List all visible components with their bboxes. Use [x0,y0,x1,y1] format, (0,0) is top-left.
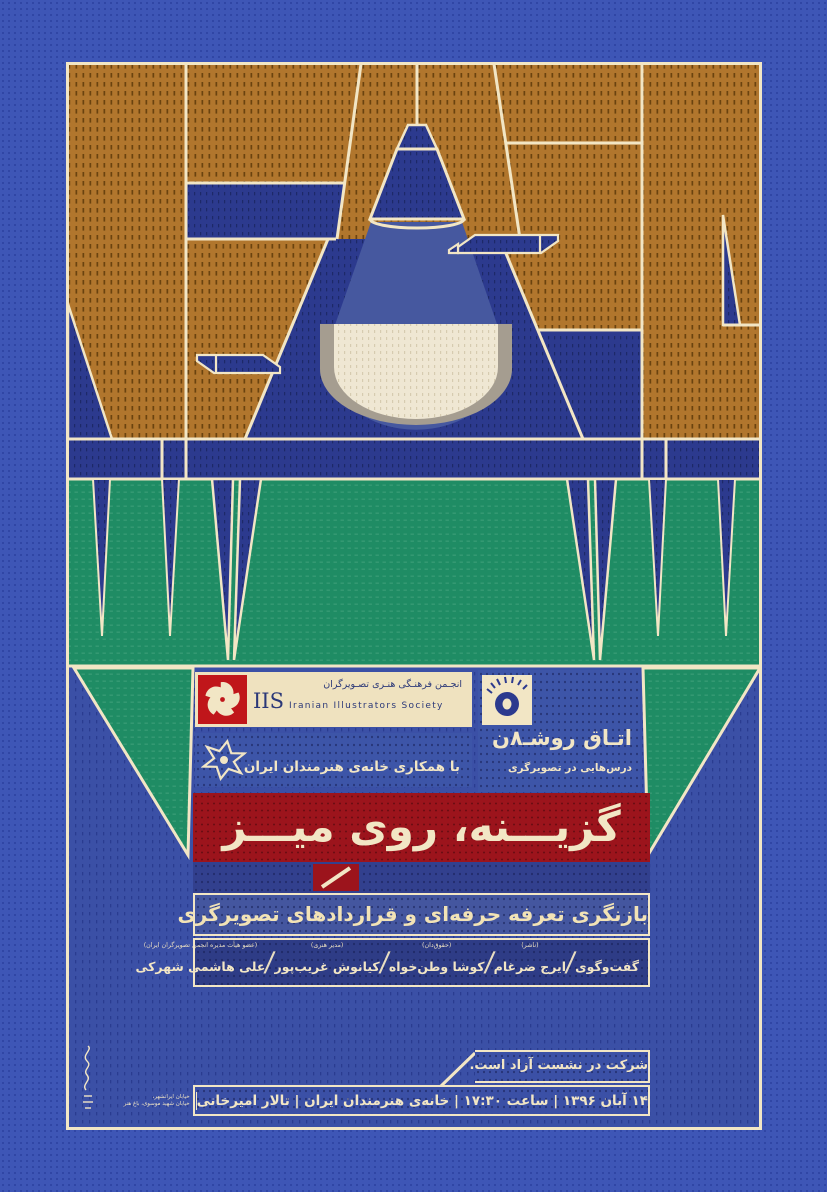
artists-house-logo-icon [201,737,247,787]
iis-pinwheel-icon [198,675,247,724]
iis-name-fa: انجـمن فرهنـگی هنـری تصـویرگران [253,679,462,690]
address-line-1: خیابان ایرانشهر، [124,1094,190,1101]
subtitle-bar: بازنگری تعرفه حرفه‌ای و قراردادهای تصویر… [193,893,650,936]
venue-address: خیابان ایرانشهر، خیابان شهید موسوی، باغ … [120,1092,197,1110]
date-venue-bar: ۱۴ آبان ۱۳۹۶ | ساعت ۱۷:۳۰ | خانه‌ی هنرمن… [193,1085,650,1116]
participant: (مدیر هنری) کیانوش غریب‌پور [275,942,380,983]
kasra-strip [193,862,650,893]
iis-name-en-text: Iranian Illustrators Society [289,701,444,711]
table-band [68,439,760,479]
aperture-eye-icon [482,675,532,725]
address-line-2: خیابان شهید موسوی، باغ هنر [124,1101,190,1108]
participant: (عضو هیأت مدیره انجمن تصویرگران ایران) ع… [136,942,266,983]
date-venue-text: ۱۴ آبان ۱۳۹۶ | ساعت ۱۷:۳۰ | خانه‌ی هنرمن… [197,1093,648,1109]
main-title: گزیـــنه، روی میـــز [193,793,650,860]
iis-name-en: IIS Iranian Illustrators Society [253,690,472,712]
series-subtitle: درس‌هایی در تصویرگری [482,762,632,774]
participant-role: (عضو هیأت مدیره انجمن تصویرگران ایران) [144,942,258,954]
participants-bar: گفت‌وگوی / (ناشر) ایرج ضرغام / (حقوق‌دان… [193,938,650,987]
main-title-banner: گزیـــنه، روی میـــز [193,793,650,862]
participant-name: علی هاشمی شهرکی [136,954,266,980]
participant-role: (مدیر هنری) [311,942,343,954]
pen-left [197,355,280,373]
series-box: اتـاق روشـ۸ن درس‌هایی در تصویرگری [478,670,640,792]
free-entry-text: شرکت در نشست آزاد است. [475,1052,648,1080]
kasra-mark [313,864,359,891]
participant-name: کوشا وطن‌خواه [389,954,485,980]
poster: انجـمن فرهنـگی هنـری تصـویرگران IIS Iran… [66,62,762,1130]
collaboration-box: با همکاری خانه‌ی هنرمندان ایران [195,733,472,787]
iis-logo-box: انجـمن فرهنـگی هنـری تصـویرگران IIS Iran… [195,672,472,727]
pen-right [458,235,558,253]
poster-page: انجـمن فرهنـگی هنـری تصـویرگران IIS Iran… [0,0,827,1192]
free-entry-box: شرکت در نشست آزاد است. [475,1050,650,1083]
panel-intro-text: گفت‌وگوی [575,954,639,980]
iis-abbr: IIS [253,690,284,712]
participant-name: کیانوش غریب‌پور [275,954,380,980]
participant: (ناشر) ایرج ضرغام [494,942,566,983]
subtitle-text: بازنگری تعرفه حرفه‌ای و قراردادهای تصویر… [195,895,648,933]
series-title: اتـاق روشـ۸ن [482,726,632,750]
participant: (حقوق‌دان) کوشا وطن‌خواه [389,942,485,983]
participant-role: (حقوق‌دان) [422,942,451,954]
collaboration-text: با همکاری خانه‌ی هنرمندان ایران [244,759,460,775]
participant-name: ایرج ضرغام [494,954,566,980]
participant-role: (ناشر) [521,942,538,954]
panel-intro: گفت‌وگوی [575,942,639,983]
